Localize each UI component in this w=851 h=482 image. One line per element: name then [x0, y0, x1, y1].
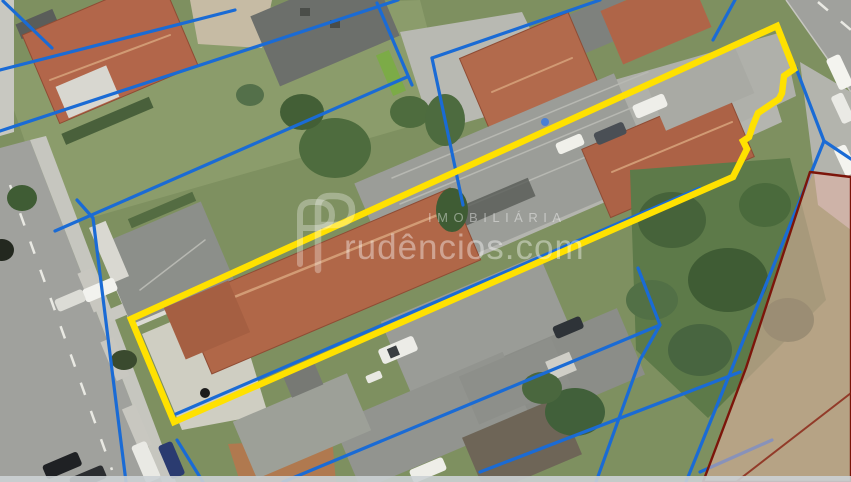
tree — [522, 372, 562, 404]
tree — [739, 183, 791, 227]
bush — [111, 350, 137, 370]
pool — [541, 118, 549, 126]
tree — [7, 185, 37, 211]
tree — [688, 248, 768, 312]
roof-vent — [300, 8, 310, 16]
dark-dot-marker — [200, 388, 210, 398]
bottom-edge-band — [0, 476, 851, 482]
aerial-map-canvas[interactable]: IMOBILIÁRIA rudêncios.com — [0, 0, 851, 482]
tree — [668, 324, 732, 376]
aerial-map-viewport[interactable]: IMOBILIÁRIA rudêncios.com — [0, 0, 851, 482]
watermark-label-top: IMOBILIÁRIA — [428, 210, 567, 225]
watermark-label-main: rudêncios.com — [344, 228, 585, 267]
tree — [390, 96, 430, 128]
bush — [236, 84, 264, 106]
